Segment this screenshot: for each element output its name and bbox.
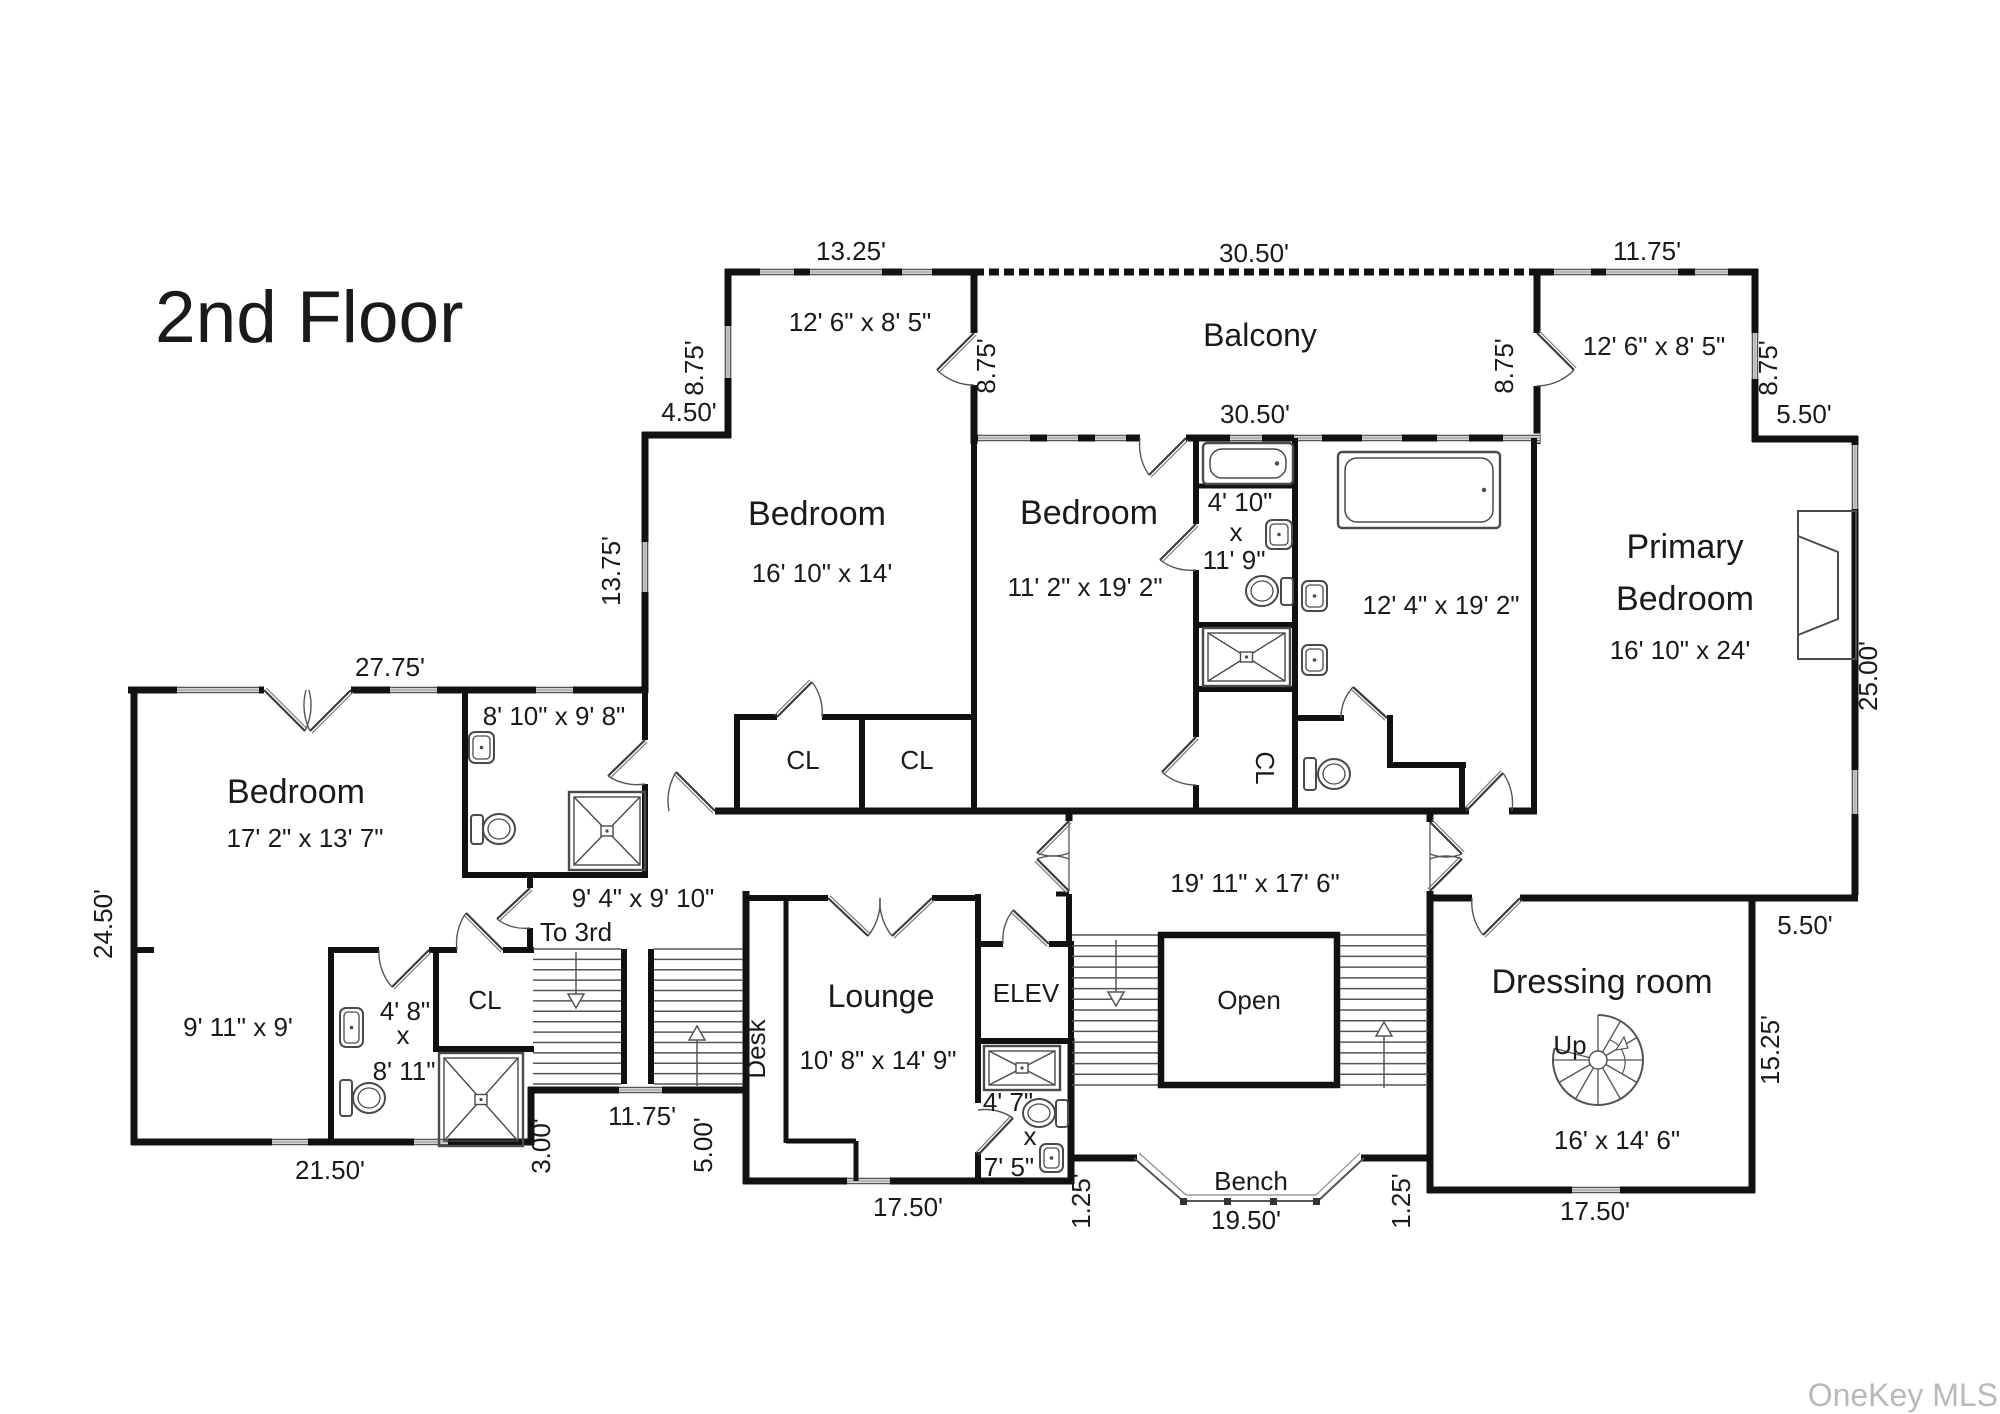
svg-text:30.50': 30.50' (1220, 399, 1290, 429)
svg-text:16' x 14' 6": 16' x 14' 6" (1554, 1125, 1680, 1155)
svg-text:12' 6" x 8' 5": 12' 6" x 8' 5" (1583, 331, 1726, 361)
svg-text:4' 7": 4' 7" (983, 1087, 1033, 1117)
svg-text:1.25': 1.25' (1386, 1173, 1416, 1229)
svg-text:Desk: Desk (741, 1018, 771, 1078)
svg-text:3.00': 3.00' (526, 1118, 556, 1174)
svg-text:9' 11" x 9': 9' 11" x 9' (183, 1012, 293, 1042)
svg-text:11' 2" x 19' 2": 11' 2" x 19' 2" (1007, 572, 1162, 602)
svg-text:17.50': 17.50' (1560, 1196, 1630, 1226)
svg-text:4.50': 4.50' (661, 397, 717, 427)
svg-text:5.50': 5.50' (1776, 399, 1832, 429)
svg-text:4' 10": 4' 10" (1208, 487, 1273, 517)
svg-text:8.75': 8.75' (679, 340, 709, 396)
svg-text:7' 5": 7' 5" (984, 1152, 1034, 1182)
svg-text:2nd Floor: 2nd Floor (155, 277, 463, 358)
svg-text:Primary: Primary (1626, 528, 1743, 566)
svg-text:Balcony: Balcony (1203, 317, 1317, 353)
svg-text:27.75': 27.75' (355, 652, 425, 682)
svg-text:13.25': 13.25' (816, 236, 886, 266)
svg-text:17.50': 17.50' (873, 1192, 943, 1222)
svg-text:Bedroom: Bedroom (1020, 494, 1158, 532)
svg-text:15.25': 15.25' (1755, 1015, 1785, 1085)
svg-text:CL: CL (468, 985, 501, 1015)
svg-text:Bedroom: Bedroom (748, 495, 886, 533)
svg-text:1.25': 1.25' (1066, 1173, 1096, 1229)
svg-text:CL: CL (786, 745, 819, 775)
svg-text:CL: CL (900, 745, 933, 775)
svg-text:8' 11": 8' 11" (373, 1056, 436, 1086)
svg-text:12' 4" x 19' 2": 12' 4" x 19' 2" (1362, 590, 1519, 620)
svg-text:x: x (1024, 1121, 1037, 1151)
svg-text:To 3rd: To 3rd (540, 917, 612, 947)
svg-text:16' 10" x 14': 16' 10" x 14' (752, 558, 893, 588)
svg-text:11.75': 11.75' (608, 1101, 676, 1131)
svg-text:OneKey MLS: OneKey MLS (1808, 1377, 1998, 1413)
svg-text:10' 8" x 14' 9": 10' 8" x 14' 9" (799, 1045, 956, 1075)
svg-text:x: x (1230, 517, 1243, 547)
svg-text:24.50': 24.50' (88, 889, 118, 959)
svg-text:8' 10" x 9' 8": 8' 10" x 9' 8" (483, 701, 626, 731)
svg-text:5.00': 5.00' (688, 1117, 718, 1173)
svg-text:12' 6" x 8' 5": 12' 6" x 8' 5" (789, 307, 932, 337)
svg-text:9' 4" x 9' 10": 9' 4" x 9' 10" (572, 883, 715, 913)
svg-text:Bedroom: Bedroom (227, 773, 365, 811)
svg-text:8.75': 8.75' (1489, 338, 1519, 394)
svg-text:17' 2" x 13' 7": 17' 2" x 13' 7" (226, 823, 383, 853)
svg-text:19' 11" x 17' 6": 19' 11" x 17' 6" (1170, 868, 1340, 898)
svg-text:Lounge: Lounge (828, 978, 935, 1014)
svg-text:Dressing room: Dressing room (1491, 963, 1712, 1001)
svg-text:16' 10" x 24': 16' 10" x 24' (1610, 635, 1751, 665)
svg-text:30.50': 30.50' (1219, 238, 1289, 268)
svg-text:Bench: Bench (1214, 1166, 1288, 1196)
svg-text:Bedroom: Bedroom (1616, 580, 1754, 618)
svg-text:Up: Up (1553, 1030, 1586, 1060)
svg-text:19.50': 19.50' (1211, 1205, 1281, 1235)
svg-text:Open: Open (1217, 985, 1281, 1015)
svg-text:21.50': 21.50' (295, 1155, 365, 1185)
svg-text:CL: CL (1250, 751, 1280, 784)
svg-text:5.50': 5.50' (1777, 910, 1833, 940)
svg-text:8.75': 8.75' (971, 338, 1001, 394)
svg-text:25.00': 25.00' (1853, 641, 1883, 711)
svg-text:11' 9": 11' 9" (1203, 545, 1266, 575)
svg-text:11.75': 11.75' (1613, 236, 1681, 266)
svg-text:13.75': 13.75' (596, 536, 626, 606)
svg-text:ELEV: ELEV (993, 978, 1060, 1008)
svg-text:x: x (397, 1020, 410, 1050)
svg-text:8.75': 8.75' (1753, 340, 1783, 396)
